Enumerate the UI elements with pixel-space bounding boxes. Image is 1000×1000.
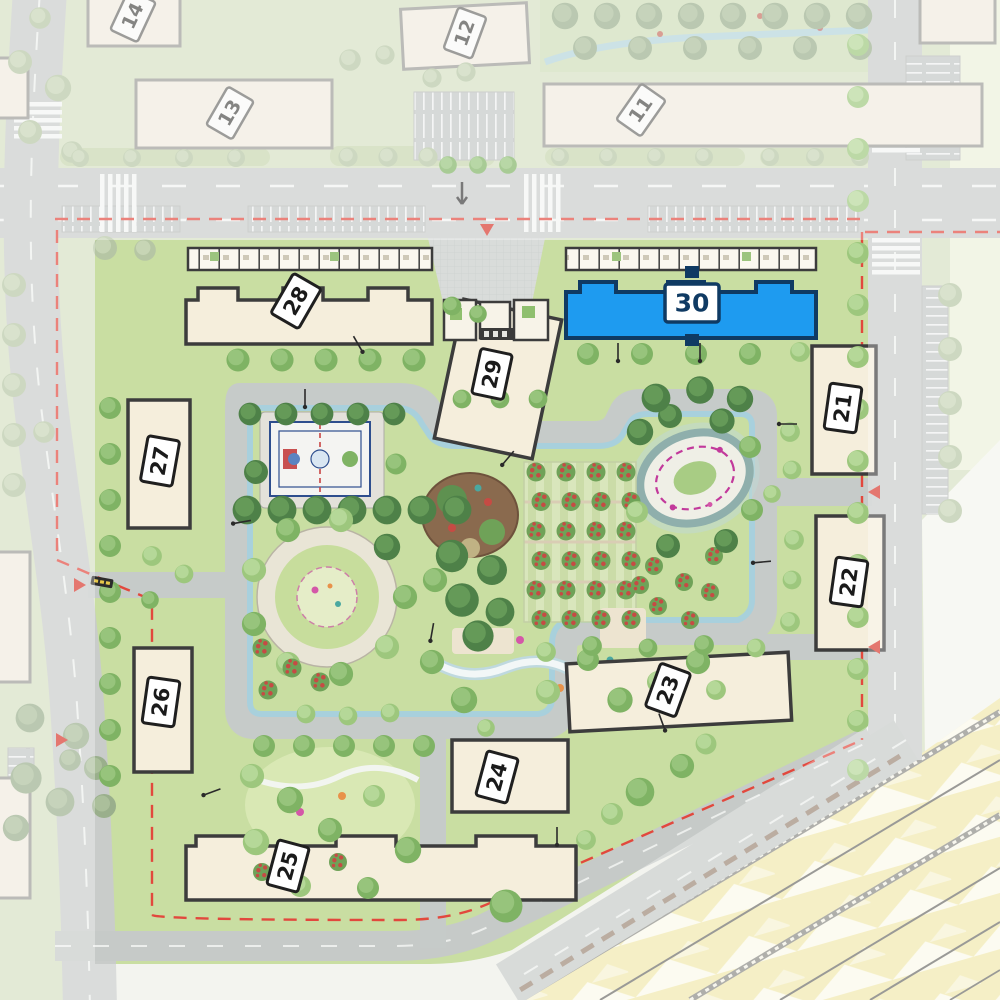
tree-icon [445,583,479,617]
tree-icon [347,403,370,426]
tree-icon [339,707,358,726]
tree-icon [413,735,435,757]
tree-icon [270,348,293,371]
tree-icon [490,890,523,923]
tree-icon [393,585,417,609]
tree-icon [763,485,781,503]
tree-icon [557,522,576,541]
tree-icon [243,829,269,855]
tree-icon [536,680,560,704]
tree-icon [420,650,444,674]
tree-icon [275,403,298,426]
svg-text:21: 21 [829,392,857,424]
tree-icon [244,460,268,484]
tree-icon [226,348,249,371]
tree-icon [626,501,648,523]
tree-icon [617,463,636,482]
tree-icon [462,620,493,651]
tree-icon [582,636,602,656]
tree-icon [477,555,507,585]
building-30-number: 30 [675,289,710,318]
tree-icon [694,635,714,655]
tree-icon [374,534,400,560]
tree-icon [675,573,693,591]
tree-icon [536,642,556,662]
tree-icon [727,386,753,412]
tree-icon [627,419,653,445]
tree-icon [639,639,658,658]
tree-icon [381,704,400,723]
tree-icon [239,403,262,426]
tree-icon [741,499,763,521]
tree-icon [443,496,472,525]
tree-icon [783,461,802,480]
tree-icon [739,343,761,365]
tree-icon [240,764,264,788]
tree-icon [329,853,347,871]
tree-icon [363,785,385,807]
building-27-label[interactable]: 27 [140,436,180,487]
tree-icon [780,422,800,442]
tree-icon [631,576,649,594]
tree-icon [311,403,334,426]
tree-icon [562,492,581,511]
tree-icon [99,443,121,465]
tree-icon [847,294,869,316]
tree-icon [685,343,707,365]
tree-icon [784,530,804,550]
tree-icon [649,597,667,615]
tree-icon [408,496,437,525]
tree-icon [314,348,337,371]
tree-icon [373,735,395,757]
tree-icon [297,705,316,724]
tree-icon [142,546,162,566]
tree-icon [617,522,636,541]
tree-icon [587,463,606,482]
drive-south [420,726,446,948]
tree-icon [576,830,596,850]
tree-icon [592,492,611,511]
tree-icon [562,610,581,629]
tree-icon [469,305,487,323]
tree-icon [375,635,399,659]
tree-icon [529,390,548,409]
tree-icon [527,522,546,541]
tree-icon [99,397,121,419]
tree-icon [847,502,869,524]
tree-icon [709,408,734,433]
site-plan-map: 14 13 12 11 21 22 23 24 25 26 27 28 29 [0,0,1000,1000]
tree-icon [99,719,121,741]
tree-icon [790,342,810,362]
tree-icon [99,673,121,695]
site-plan: 14 13 12 11 21 22 23 24 25 26 27 28 29 [0,0,1000,1000]
tree-icon [527,463,546,482]
tree-icon [242,558,266,582]
tree-icon [587,581,606,600]
tree-icon [329,508,353,532]
tree-icon [242,612,266,636]
tree-icon [670,754,694,778]
tree-icon [706,680,726,700]
tree-icon [436,540,468,572]
tree-icon [357,877,379,899]
tree-icon [453,390,472,409]
svg-text:27: 27 [146,445,175,478]
tree-icon [592,551,611,570]
tree-icon [92,794,116,818]
tree-icon [318,818,342,842]
tree-icon [373,496,402,525]
tree-icon [622,551,641,570]
tree-icon [283,659,302,678]
tree-icon [783,571,802,590]
building-26-label[interactable]: 26 [142,677,180,727]
tree-icon [656,534,680,558]
tree-icon [532,610,551,629]
tree-icon [532,492,551,511]
tree-icon [847,450,869,472]
tree-icon [681,611,699,629]
tree-icon [780,612,800,632]
tree-icon [587,522,606,541]
tree-icon [847,346,869,368]
tree-icon [696,734,717,755]
tree-icon [642,384,671,413]
tree-icon [134,239,156,261]
tree-icon [333,735,355,757]
tree-icon [451,687,477,713]
tree-icon [607,687,632,712]
tree-icon [277,787,303,813]
tree-icon [276,518,300,542]
tree-icon [747,639,766,658]
tree-icon [423,568,447,592]
sports-court [260,412,384,508]
tree-icon [686,376,714,404]
tree-icon [443,297,462,316]
tree-icon [253,639,272,658]
tree-icon [592,610,611,629]
tree-icon [626,778,655,807]
tree-icon [577,343,599,365]
tree-icon [527,581,546,600]
svg-text:22: 22 [835,566,863,598]
tree-icon [395,837,421,863]
tree-icon [622,610,641,629]
tree-icon [714,529,738,553]
tree-icon [253,735,275,757]
tree-icon [383,403,406,426]
tree-icon [99,489,121,511]
tree-icon [175,565,194,584]
tree-icon [293,735,315,757]
tree-icon [739,436,761,458]
tree-icon [99,765,121,787]
tree-icon [557,463,576,482]
tree-icon [311,673,330,692]
tree-icon [329,662,353,686]
tree-icon [557,581,576,600]
tree-icon [562,551,581,570]
tree-icon [402,348,425,371]
tree-icon [601,803,623,825]
tree-icon [386,454,407,475]
svg-text:26: 26 [147,686,175,718]
building-22-label[interactable]: 22 [830,557,868,607]
building-21-label[interactable]: 21 [824,383,862,433]
tree-icon [532,551,551,570]
tree-icon [141,591,159,609]
tree-icon [477,719,495,737]
tree-icon [486,598,515,627]
tree-icon [645,557,663,575]
tree-icon [233,496,262,525]
tree-icon [847,658,869,680]
tree-icon [259,681,278,700]
tree-icon [847,606,869,628]
tree-icon [99,627,121,649]
tree-icon [847,242,869,264]
tree-icon [303,496,332,525]
tree-icon [631,343,653,365]
tree-icon [99,535,121,557]
tree-icon [701,583,719,601]
